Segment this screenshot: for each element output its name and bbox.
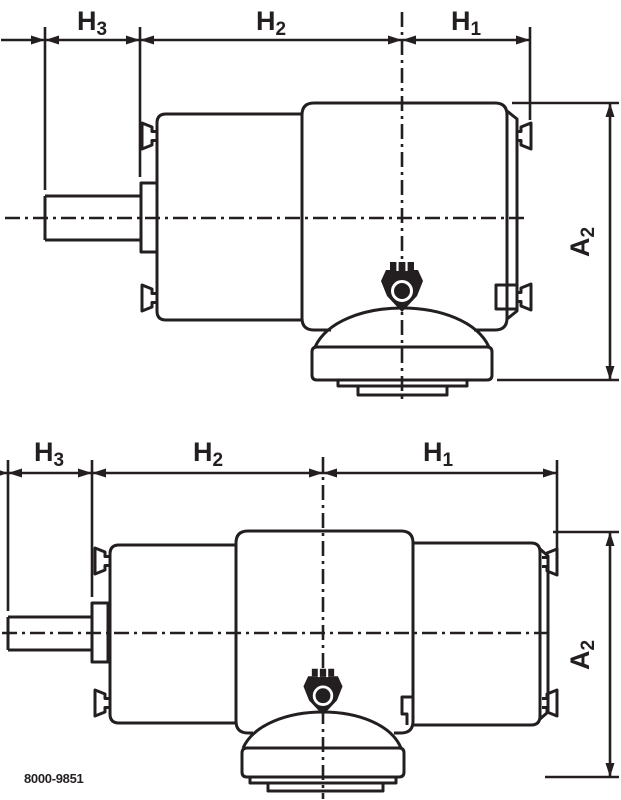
mounting-bolt — [95, 548, 110, 574]
mounting-bolt — [95, 690, 110, 716]
dimension-label-h2: H2 — [193, 437, 223, 471]
dimension-label-a2: A2 — [565, 640, 599, 670]
dimension-drawing: H3 H2 H1 A2 H3 H2 — [0, 0, 621, 800]
dimension-label-h1: H1 — [451, 6, 482, 40]
technical-drawing-page: H3 H2 H1 A2 H3 H2 — [0, 0, 621, 800]
figure-number: 8000-9851 — [24, 771, 84, 786]
dimension-label-h1: H1 — [423, 437, 454, 471]
dimension-label-h2: H2 — [256, 6, 286, 40]
mounting-bolt — [142, 285, 157, 311]
extension-lines — [8, 460, 557, 611]
a-dimension-extensions — [497, 103, 619, 380]
grease-fitting — [303, 668, 342, 715]
dimension-label-a2: A2 — [565, 227, 599, 257]
grease-fitting — [381, 261, 423, 312]
mounting-bolt — [142, 123, 157, 149]
dimension-label-h3: H3 — [77, 6, 107, 40]
flange-step-notch — [402, 697, 413, 725]
upper-view: H3 H2 H1 A2 — [1, 6, 619, 404]
extension-lines — [45, 27, 530, 190]
lower-view: H3 H2 H1 A2 — [0, 437, 619, 799]
dimension-label-h3: H3 — [34, 437, 64, 471]
